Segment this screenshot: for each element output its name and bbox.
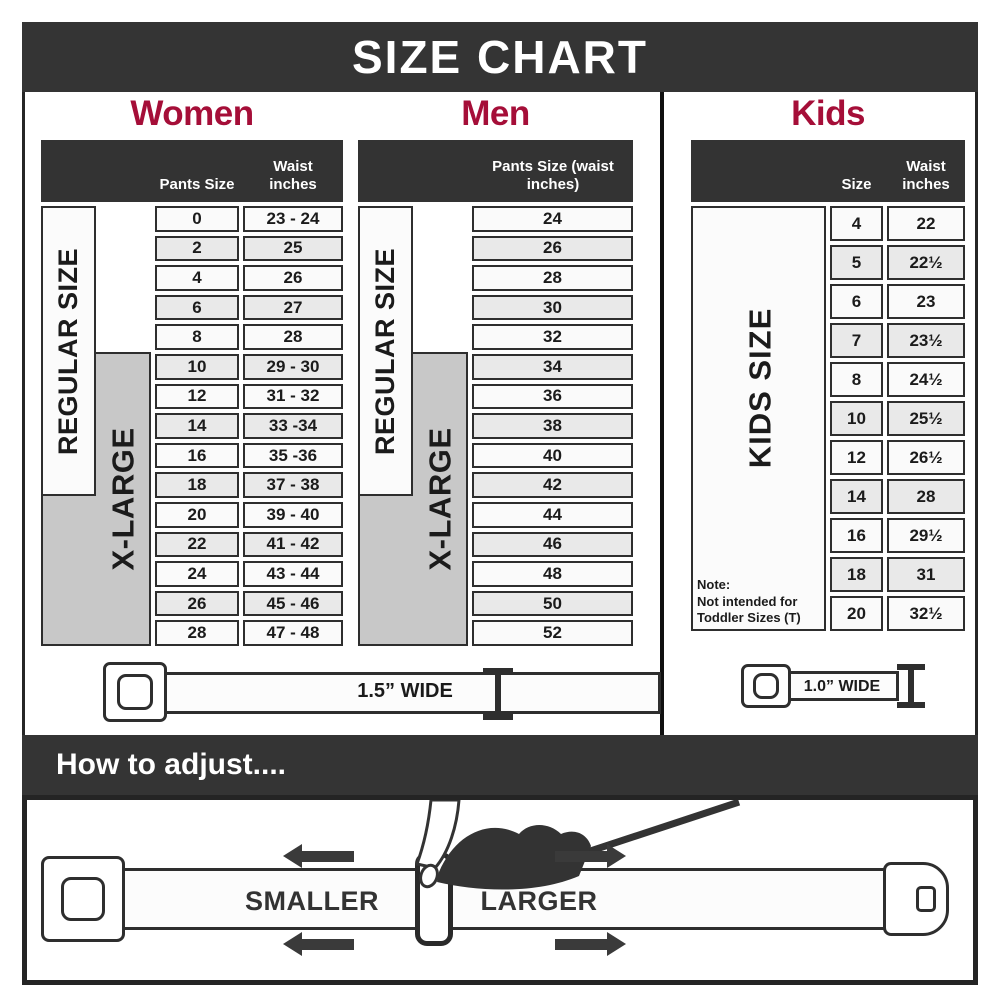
men-regular-size-label: REGULAR SIZE bbox=[358, 206, 413, 496]
waist-cell: 37 - 38 bbox=[243, 472, 343, 498]
waist-cell: 29 - 30 bbox=[243, 354, 343, 380]
table-row: 38 bbox=[472, 413, 633, 439]
table-row: 18 37 - 38 bbox=[155, 472, 343, 498]
table-row: 12 31 - 32 bbox=[155, 384, 343, 410]
kids-waist-cell: 23½ bbox=[887, 323, 965, 358]
table-row: 10 29 - 30 bbox=[155, 354, 343, 380]
size-chart-page: SIZE CHART Women Men Kids Pants Size Wai… bbox=[0, 0, 1000, 1000]
waist-cell: 39 - 40 bbox=[243, 502, 343, 528]
pants-size-cell: 8 bbox=[155, 324, 239, 350]
kids-belt-width-label: 1.0” WIDE bbox=[787, 678, 897, 696]
arrow-right-icon bbox=[555, 844, 626, 868]
kids-table-rows: 4 22 5 22½ 6 23 7 23½ bbox=[830, 206, 965, 631]
kids-size-box: KIDS SIZE Note: Not intended for Toddler… bbox=[691, 206, 826, 631]
women-regular-size-label: REGULAR SIZE bbox=[41, 206, 96, 496]
kids-size-cell: 18 bbox=[830, 557, 883, 592]
kids-note: Note: Not intended for Toddler Sizes (T) bbox=[697, 577, 801, 626]
women-size-table: Pants Size Waist inches REGULAR SIZE X-L… bbox=[41, 140, 343, 646]
table-row: 24 43 - 44 bbox=[155, 561, 343, 587]
smaller-label: SMALLER bbox=[222, 886, 402, 917]
table-row: 28 47 - 48 bbox=[155, 620, 343, 646]
kids-waist-cell: 23 bbox=[887, 284, 965, 319]
kids-size-cell: 6 bbox=[830, 284, 883, 319]
how-to-adjust-heading: How to adjust.... bbox=[22, 735, 978, 795]
table-row: 40 bbox=[472, 443, 633, 469]
pants-size-cell: 30 bbox=[472, 295, 633, 321]
waist-cell: 33 -34 bbox=[243, 413, 343, 439]
kids-waist-cell: 32½ bbox=[887, 596, 965, 631]
pants-size-cell: 28 bbox=[472, 265, 633, 291]
kids-size-cell: 12 bbox=[830, 440, 883, 475]
waist-cell: 45 - 46 bbox=[243, 591, 343, 617]
kids-waist-cell: 26½ bbox=[887, 440, 965, 475]
table-row: 44 bbox=[472, 502, 633, 528]
men-xlarge-label: X-LARGE bbox=[413, 352, 468, 646]
pants-size-cell: 52 bbox=[472, 620, 633, 646]
pants-size-cell: 20 bbox=[155, 502, 239, 528]
kids-table-header: Size Waist inches bbox=[691, 140, 965, 202]
table-row: 18 31 bbox=[830, 557, 965, 592]
adult-belt-buckle-icon bbox=[103, 662, 167, 722]
women-waist-column-header: Waist inches bbox=[261, 158, 325, 196]
waist-cell: 25 bbox=[243, 236, 343, 262]
kids-waist-cell: 29½ bbox=[887, 518, 965, 553]
table-row: 34 bbox=[472, 354, 633, 380]
pants-size-cell: 22 bbox=[155, 532, 239, 558]
kids-size-cell: 16 bbox=[830, 518, 883, 553]
pants-size-cell: 4 bbox=[155, 265, 239, 291]
pants-size-cell: 6 bbox=[155, 295, 239, 321]
table-row: 50 bbox=[472, 591, 633, 617]
arrow-right-icon bbox=[555, 932, 626, 956]
pants-size-cell: 12 bbox=[155, 384, 239, 410]
pants-size-cell: 28 bbox=[155, 620, 239, 646]
kids-size-cell: 7 bbox=[830, 323, 883, 358]
table-row: 26 45 - 46 bbox=[155, 591, 343, 617]
pants-size-cell: 14 bbox=[155, 413, 239, 439]
kids-width-indicator-icon bbox=[897, 664, 925, 708]
waist-cell: 43 - 44 bbox=[243, 561, 343, 587]
pants-size-cell: 46 bbox=[472, 532, 633, 558]
table-row: 16 35 -36 bbox=[155, 443, 343, 469]
men-title: Men bbox=[358, 94, 633, 138]
kids-size-cell: 5 bbox=[830, 245, 883, 280]
table-row: 6 27 bbox=[155, 295, 343, 321]
pants-size-cell: 36 bbox=[472, 384, 633, 410]
table-row: 20 32½ bbox=[830, 596, 965, 631]
pants-size-cell: 48 bbox=[472, 561, 633, 587]
kids-size-table: Size Waist inches KIDS SIZE Note: Not in… bbox=[691, 140, 965, 631]
kids-size-column-header: Size bbox=[830, 176, 883, 195]
kids-waist-cell: 31 bbox=[887, 557, 965, 592]
adult-belt-width-label: 1.5” WIDE bbox=[335, 680, 475, 703]
kids-waist-column-header: Waist inches bbox=[894, 158, 958, 196]
table-row: 4 22 bbox=[830, 206, 965, 241]
kids-waist-cell: 22 bbox=[887, 206, 965, 241]
table-row: 42 bbox=[472, 472, 633, 498]
table-row: 32 bbox=[472, 324, 633, 350]
pants-size-cell: 50 bbox=[472, 591, 633, 617]
table-row: 46 bbox=[472, 532, 633, 558]
pants-size-cell: 32 bbox=[472, 324, 633, 350]
pants-size-cell: 16 bbox=[155, 443, 239, 469]
table-row: 2 25 bbox=[155, 236, 343, 262]
pants-size-cell: 2 bbox=[155, 236, 239, 262]
table-row: 12 26½ bbox=[830, 440, 965, 475]
pants-size-cell: 0 bbox=[155, 206, 239, 232]
table-row: 28 bbox=[472, 265, 633, 291]
table-row: 36 bbox=[472, 384, 633, 410]
waist-cell: 28 bbox=[243, 324, 343, 350]
table-row: 24 bbox=[472, 206, 633, 232]
kids-waist-cell: 24½ bbox=[887, 362, 965, 397]
women-size-column-header: Pants Size bbox=[155, 176, 239, 195]
men-table-rows: 24 26 28 30 32 bbox=[472, 206, 633, 646]
waist-cell: 47 - 48 bbox=[243, 620, 343, 646]
table-row: 5 22½ bbox=[830, 245, 965, 280]
kids-waist-cell: 22½ bbox=[887, 245, 965, 280]
pants-size-cell: 44 bbox=[472, 502, 633, 528]
table-row: 26 bbox=[472, 236, 633, 262]
table-row: 48 bbox=[472, 561, 633, 587]
kids-size-cell: 14 bbox=[830, 479, 883, 514]
waist-cell: 35 -36 bbox=[243, 443, 343, 469]
pants-size-cell: 26 bbox=[472, 236, 633, 262]
arrow-left-icon bbox=[283, 844, 354, 868]
kids-belt-buckle-icon bbox=[741, 664, 791, 708]
table-row: 14 28 bbox=[830, 479, 965, 514]
table-row: 0 23 - 24 bbox=[155, 206, 343, 232]
pants-size-cell: 40 bbox=[472, 443, 633, 469]
men-size-column-header: Pants Size (waist inches) bbox=[488, 158, 618, 196]
waist-cell: 27 bbox=[243, 295, 343, 321]
kids-waist-cell: 25½ bbox=[887, 401, 965, 436]
panel-divider bbox=[660, 92, 664, 735]
table-row: 10 25½ bbox=[830, 401, 965, 436]
kids-waist-cell: 28 bbox=[887, 479, 965, 514]
pants-size-cell: 24 bbox=[155, 561, 239, 587]
kids-size-cell: 8 bbox=[830, 362, 883, 397]
adult-width-indicator-icon bbox=[483, 668, 513, 720]
table-row: 52 bbox=[472, 620, 633, 646]
table-row: 30 bbox=[472, 295, 633, 321]
pants-size-cell: 24 bbox=[472, 206, 633, 232]
table-row: 14 33 -34 bbox=[155, 413, 343, 439]
women-table-rows: 0 23 - 24 2 25 4 26 6 2 bbox=[155, 206, 343, 646]
kids-size-cell: 10 bbox=[830, 401, 883, 436]
women-table-header: Pants Size Waist inches bbox=[41, 140, 343, 202]
men-table-header: Pants Size (waist inches) bbox=[358, 140, 633, 202]
table-row: 22 41 - 42 bbox=[155, 532, 343, 558]
kids-size-cell: 4 bbox=[830, 206, 883, 241]
page-title: SIZE CHART bbox=[22, 22, 978, 92]
table-row: 4 26 bbox=[155, 265, 343, 291]
waist-cell: 41 - 42 bbox=[243, 532, 343, 558]
table-row: 8 24½ bbox=[830, 362, 965, 397]
adjust-illustration: SMALLER LARGER bbox=[22, 795, 978, 985]
women-xlarge-label: X-LARGE bbox=[96, 352, 151, 646]
pants-size-cell: 10 bbox=[155, 354, 239, 380]
women-title: Women bbox=[41, 94, 343, 138]
table-row: 20 39 - 40 bbox=[155, 502, 343, 528]
pants-size-cell: 34 bbox=[472, 354, 633, 380]
table-row: 6 23 bbox=[830, 284, 965, 319]
table-row: 7 23½ bbox=[830, 323, 965, 358]
table-row: 8 28 bbox=[155, 324, 343, 350]
pants-size-cell: 18 bbox=[155, 472, 239, 498]
table-row: 16 29½ bbox=[830, 518, 965, 553]
arrow-left-icon bbox=[283, 932, 354, 956]
kids-size-side-label: KIDS SIZE bbox=[693, 208, 828, 568]
pants-size-cell: 38 bbox=[472, 413, 633, 439]
men-size-table: Pants Size (waist inches) REGULAR SIZE X… bbox=[358, 140, 633, 646]
pants-size-cell: 42 bbox=[472, 472, 633, 498]
kids-size-cell: 20 bbox=[830, 596, 883, 631]
larger-label: LARGER bbox=[459, 886, 619, 917]
waist-cell: 31 - 32 bbox=[243, 384, 343, 410]
kids-title: Kids bbox=[691, 94, 965, 138]
waist-cell: 26 bbox=[243, 265, 343, 291]
size-tables-area: Women Men Kids Pants Size Waist inches R… bbox=[22, 92, 978, 735]
waist-cell: 23 - 24 bbox=[243, 206, 343, 232]
pants-size-cell: 26 bbox=[155, 591, 239, 617]
